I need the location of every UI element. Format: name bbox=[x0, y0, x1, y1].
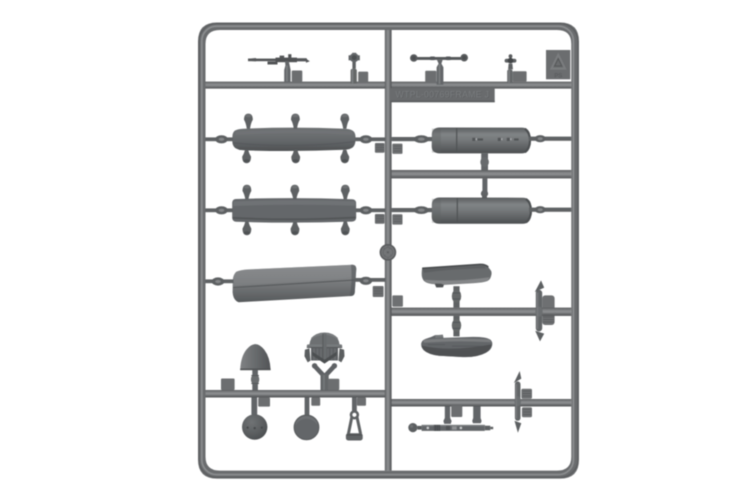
svg-text:WTPL-00769FRAME J: WTPL-00769FRAME J bbox=[396, 89, 490, 99]
svg-text:PS: PS bbox=[554, 73, 562, 79]
